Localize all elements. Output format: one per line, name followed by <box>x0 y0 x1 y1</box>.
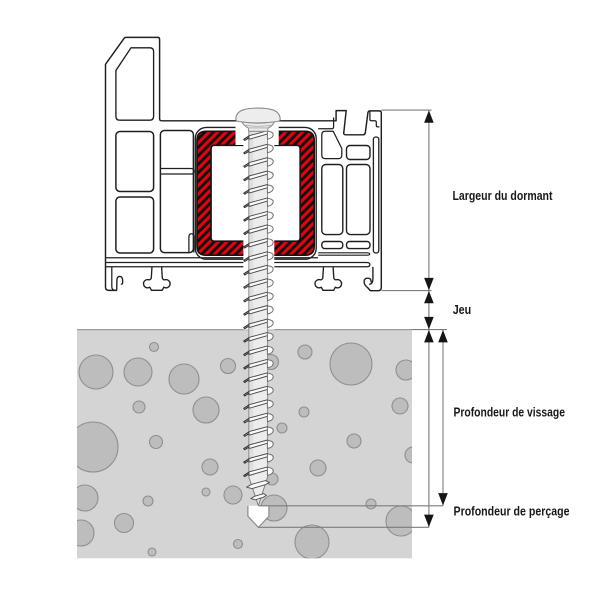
svg-text:Jeu: Jeu <box>453 303 472 317</box>
svg-text:Largeur du dormant: Largeur du dormant <box>453 189 554 203</box>
svg-text:Profondeur de perçage: Profondeur de perçage <box>454 505 570 519</box>
svg-text:Profondeur de vissage: Profondeur de vissage <box>454 406 566 420</box>
